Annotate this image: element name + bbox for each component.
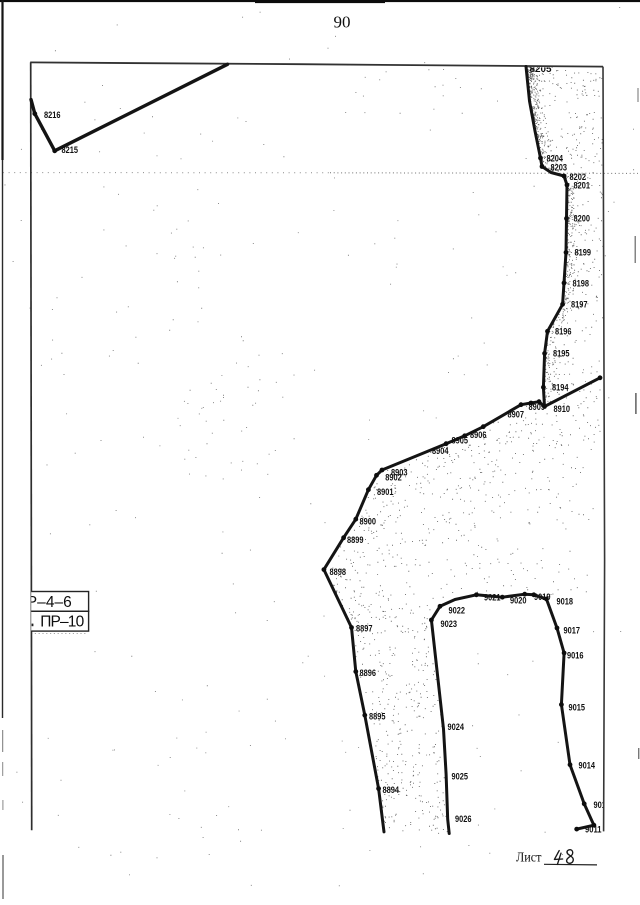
svg-text:9025: 9025 [452, 772, 469, 782]
svg-text:8894: 8894 [383, 785, 400, 795]
svg-text:8196: 8196 [555, 327, 572, 337]
svg-text:9026: 9026 [455, 814, 472, 824]
svg-text:9016: 9016 [567, 650, 584, 660]
svg-text:8200: 8200 [574, 214, 591, 224]
svg-text:8901: 8901 [377, 487, 394, 497]
svg-text:9020: 9020 [510, 596, 527, 606]
svg-text:8895: 8895 [369, 712, 386, 722]
svg-text:8897: 8897 [356, 624, 373, 634]
svg-text:8195: 8195 [553, 349, 570, 359]
svg-text:8216: 8216 [44, 110, 61, 120]
svg-text:Лист: Лист [516, 851, 542, 866]
svg-text:90: 90 [334, 13, 351, 32]
svg-text:8215: 8215 [62, 145, 79, 155]
svg-text:8910: 8910 [554, 404, 571, 414]
svg-text:9017: 9017 [564, 626, 581, 636]
svg-text:8194: 8194 [552, 383, 569, 393]
svg-text:ПР–10: ПР–10 [40, 614, 84, 631]
svg-text:9023: 9023 [441, 619, 458, 629]
svg-text:Р–4–6: Р–4–6 [27, 594, 72, 611]
svg-text:8896: 8896 [360, 668, 377, 678]
svg-text:9013: 9013 [594, 800, 611, 810]
svg-text:8899: 8899 [347, 535, 364, 545]
svg-text:8898: 8898 [330, 567, 347, 577]
svg-text:9018: 9018 [557, 597, 574, 607]
svg-text:8201: 8201 [574, 180, 591, 190]
svg-text:8907: 8907 [508, 410, 525, 420]
svg-text:8900: 8900 [360, 517, 377, 527]
svg-text:9022: 9022 [449, 606, 466, 616]
svg-text:8902: 8902 [385, 473, 402, 483]
svg-text:8203: 8203 [551, 162, 568, 172]
svg-text:8198: 8198 [573, 278, 590, 288]
svg-text:9014: 9014 [579, 761, 596, 771]
svg-text:9011: 9011 [585, 825, 602, 835]
svg-text:8199: 8199 [575, 248, 592, 258]
svg-text:9024: 9024 [448, 722, 465, 732]
svg-text:8904: 8904 [432, 446, 449, 456]
svg-text:8906: 8906 [470, 430, 487, 440]
svg-text:9015: 9015 [569, 702, 586, 712]
svg-text:8197: 8197 [571, 300, 588, 310]
svg-text:8905: 8905 [452, 436, 469, 446]
